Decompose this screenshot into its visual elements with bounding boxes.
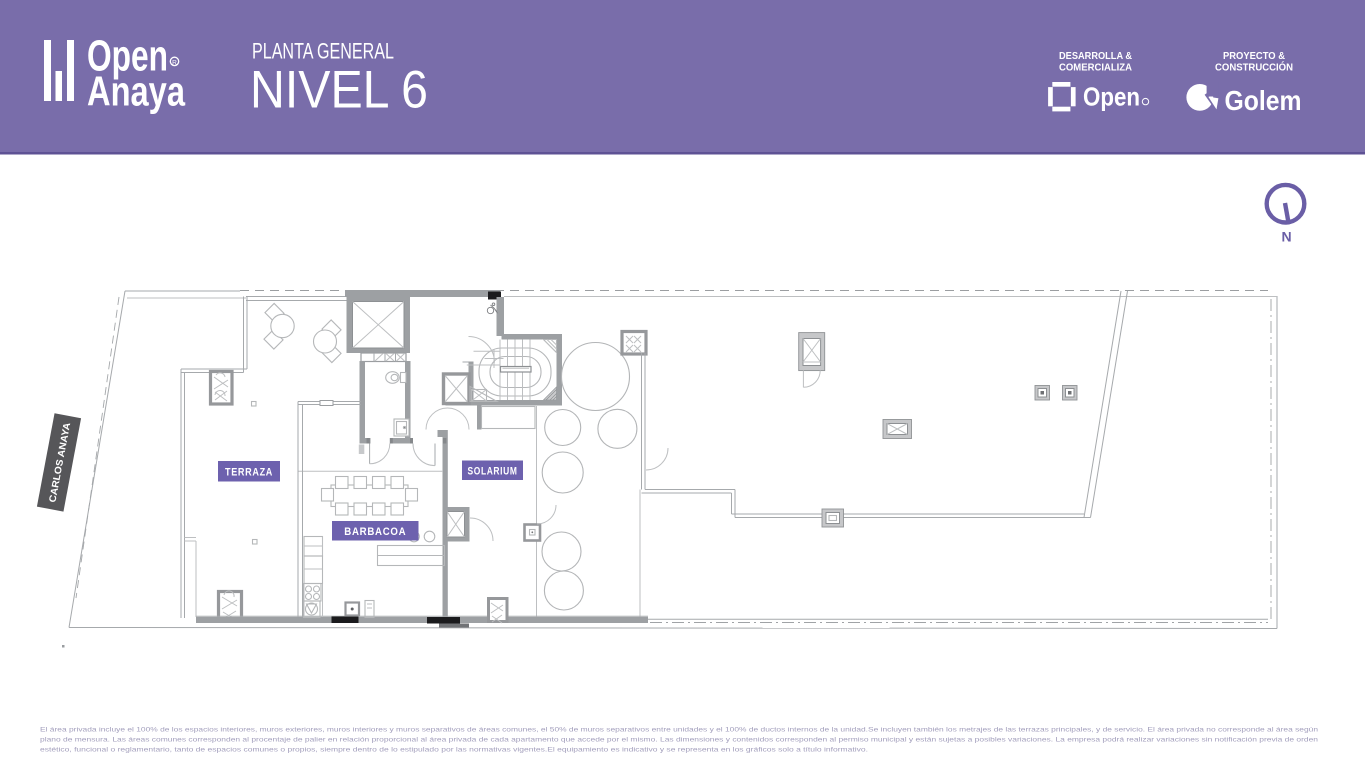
svg-text:TERRAZA: TERRAZA <box>225 467 273 479</box>
svg-text:DESARROLLA &: DESARROLLA & <box>1059 50 1132 62</box>
svg-text:plano de mensura. Las áreas co: plano de mensura. Las áreas comunes corr… <box>40 737 1318 744</box>
svg-text:CONSTRUCCIÓN: CONSTRUCCIÓN <box>1215 61 1293 74</box>
svg-text:Anaya: Anaya <box>87 68 185 115</box>
svg-text:estético, funcional o reglamen: estético, funcional o reglamentario, tan… <box>40 747 868 754</box>
svg-text:N: N <box>1281 229 1291 245</box>
svg-text:Golem: Golem <box>1225 85 1302 116</box>
svg-text:BARBACOA: BARBACOA <box>344 526 406 538</box>
svg-text:PROYECTO &: PROYECTO & <box>1223 50 1285 62</box>
svg-text:El área privada incluye el 100: El área privada incluye el 100% de los e… <box>40 727 1318 734</box>
svg-text:NIVEL 6: NIVEL 6 <box>250 61 428 120</box>
svg-text:R: R <box>172 59 177 66</box>
svg-text:COMERCIALIZA: COMERCIALIZA <box>1059 62 1132 74</box>
svg-text:SOLARIUM: SOLARIUM <box>468 466 518 478</box>
svg-text:Open: Open <box>1083 82 1140 112</box>
